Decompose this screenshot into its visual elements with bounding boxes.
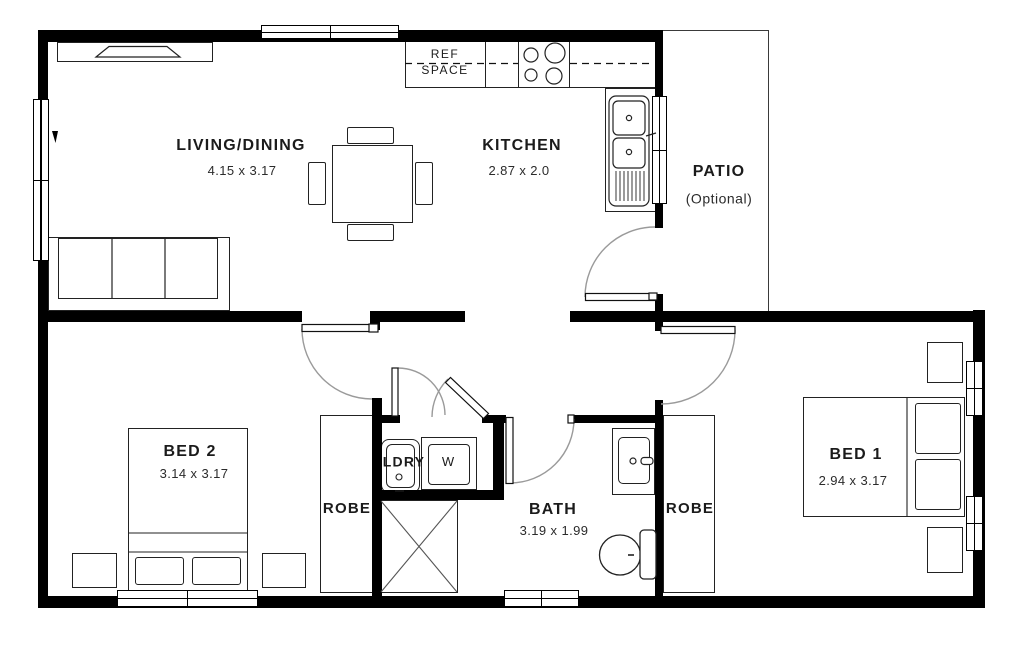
bed1-side-table-top <box>927 342 963 383</box>
window-bed1-east-top <box>966 361 983 416</box>
bed2-pillow-right <box>192 557 241 585</box>
toilet-icon <box>600 530 657 579</box>
dining-chair-south <box>347 224 394 241</box>
bath-dims: 3.19 x 1.99 <box>520 524 589 538</box>
robe-bed2-label: ROBE <box>323 501 371 518</box>
door-arc-bath <box>510 419 574 483</box>
kitchen-dims: 2.87 x 2.0 <box>488 164 549 178</box>
door-arc-bed2 <box>302 329 372 399</box>
dining-table <box>332 145 413 223</box>
door-leaf-bed2 <box>302 325 371 332</box>
cooktop <box>518 42 570 88</box>
tv-unit <box>57 42 213 62</box>
dining-chair-north <box>347 127 394 144</box>
dining-chair-west <box>308 162 326 205</box>
wall-mid-center <box>380 311 465 322</box>
wall-right <box>973 310 985 608</box>
door-leaf-laundry-right <box>446 378 489 419</box>
bed1-side-table-bottom <box>927 527 963 573</box>
patio-note: (Optional) <box>686 191 752 206</box>
fridge-space-line2: SPACE <box>414 64 476 77</box>
wall-bath-top <box>571 415 655 423</box>
floor-plan: LIVING/DINING 4.15 x 3.17 KITCHEN 2.87 x… <box>0 0 1017 652</box>
sink-counter <box>605 88 655 212</box>
wall-laundry-top-b <box>482 415 506 423</box>
door-arc-laundry-right <box>432 379 448 417</box>
bed1-dims: 2.94 x 3.17 <box>819 474 888 488</box>
counter-divider <box>485 42 486 88</box>
door-leaf-laundry-left <box>392 368 398 416</box>
wall-mid-east <box>570 311 985 322</box>
patio-label: PATIO <box>693 163 746 181</box>
vanity-basin <box>618 437 650 484</box>
window-bed1-east-bottom <box>966 496 983 551</box>
door-arc-kitchen-patio <box>585 227 655 297</box>
window-living-top <box>261 25 399 39</box>
fridge-space-line1: REF <box>414 48 476 61</box>
door-leaf-bed1 <box>661 327 735 334</box>
bed1-pillow-bottom <box>915 459 961 510</box>
kitchen-label: KITCHEN <box>482 137 562 155</box>
wall-mid-west <box>38 311 302 322</box>
living-room-label: LIVING/DINING <box>176 137 305 155</box>
bed2-label: BED 2 <box>163 443 216 461</box>
marker-arrow-icon <box>52 131 58 143</box>
wall-kitchen-east-2 <box>655 203 663 228</box>
door-arc-laundry-left <box>398 368 445 415</box>
door-leaf-bath <box>506 418 513 484</box>
window-kitchen-east <box>652 96 667 204</box>
window-living-left <box>33 99 49 261</box>
window-bath-bottom <box>504 590 579 607</box>
wall-mid-jamb <box>370 311 380 330</box>
wall-laundry-east <box>493 423 504 500</box>
wall-kitchen-east-3 <box>655 294 663 331</box>
dining-chair-east <box>415 162 433 205</box>
bed1-pillow-top <box>915 403 961 454</box>
robe-bed1-label: ROBE <box>666 501 714 518</box>
wall-kitchen-east-1 <box>655 30 663 97</box>
bed1-label: BED 1 <box>829 446 882 464</box>
living-room-dims: 4.15 x 3.17 <box>208 164 277 178</box>
fridge-space-label: REF SPACE <box>414 48 476 77</box>
wall-bath-east <box>655 400 663 596</box>
bed2-side-table-left <box>72 553 117 588</box>
shower <box>380 500 458 593</box>
bath-label: BATH <box>529 501 577 519</box>
wall-laundry-top-a <box>382 415 400 423</box>
sofa-cushions <box>58 238 218 299</box>
wall-laundry-bottom <box>372 490 502 500</box>
laundry-label: LDRY <box>383 454 425 469</box>
bed2-side-table-right <box>262 553 306 588</box>
bed2-dims: 3.14 x 3.17 <box>160 467 229 481</box>
washer-label: W <box>442 455 454 469</box>
door-leaf-kitchen-patio <box>586 294 656 301</box>
window-bed2-bottom <box>117 590 258 607</box>
door-arc-bed1 <box>661 330 735 404</box>
bed2-pillow-left <box>135 557 184 585</box>
